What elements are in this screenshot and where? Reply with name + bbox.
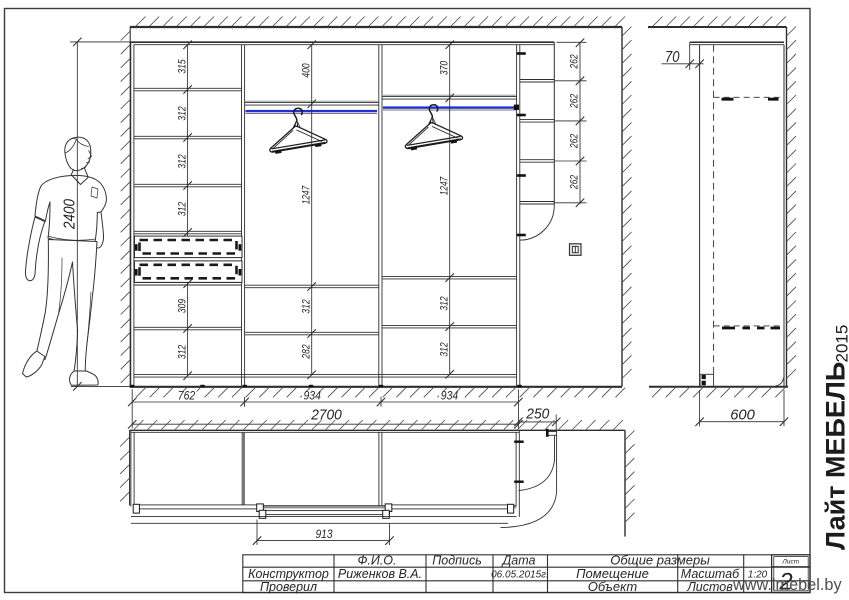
svg-text:Подпись: Подпись <box>432 553 482 567</box>
svg-text:Риженков В.А.: Риженков В.А. <box>338 567 422 581</box>
svg-text:370: 370 <box>438 60 450 75</box>
svg-text:250: 250 <box>525 406 550 423</box>
svg-text:Дата: Дата <box>501 553 536 567</box>
svg-text:312: 312 <box>176 345 188 359</box>
svg-text:2700: 2700 <box>310 406 342 423</box>
svg-text:312: 312 <box>176 106 188 120</box>
svg-text:400: 400 <box>300 63 312 78</box>
svg-text:600: 600 <box>730 406 755 423</box>
svg-text:312: 312 <box>438 342 450 356</box>
svg-text:913: 913 <box>316 529 334 541</box>
svg-text:282: 282 <box>300 344 312 359</box>
svg-text:309: 309 <box>176 299 188 313</box>
svg-text:06.05.2015г.: 06.05.2015г. <box>491 570 549 581</box>
svg-text:262: 262 <box>569 94 581 109</box>
svg-text:www.lmebel.by: www.lmebel.by <box>732 576 842 594</box>
svg-text:315: 315 <box>176 59 188 74</box>
svg-text:262: 262 <box>569 175 581 190</box>
svg-text:934: 934 <box>441 391 459 403</box>
svg-text:262: 262 <box>569 134 581 149</box>
svg-text:312: 312 <box>176 154 188 168</box>
svg-text:Листов: Листов <box>686 580 733 594</box>
svg-text:312: 312 <box>300 299 312 313</box>
svg-text:1247: 1247 <box>438 176 450 195</box>
svg-text:312: 312 <box>438 296 450 310</box>
svg-text:1247: 1247 <box>300 185 312 204</box>
svg-text:Лист: Лист <box>781 559 799 566</box>
svg-text:262: 262 <box>569 54 581 69</box>
svg-text:Объект: Объект <box>588 579 638 594</box>
svg-text:762: 762 <box>178 391 196 403</box>
svg-text:70: 70 <box>665 49 680 66</box>
svg-text:312: 312 <box>176 202 188 216</box>
svg-text:Ф.И.О.: Ф.И.О. <box>357 553 396 567</box>
svg-text:Проверил: Проверил <box>260 580 317 594</box>
svg-text:2015: 2015 <box>832 325 849 363</box>
svg-text:Масштаб: Масштаб <box>681 567 740 581</box>
svg-text:934: 934 <box>303 391 321 403</box>
svg-text:2400: 2400 <box>61 199 78 230</box>
svg-text:Конструктор: Конструктор <box>248 567 329 581</box>
svg-text:Лайт МЕБЕЛЬ: Лайт МЕБЕЛЬ <box>820 362 849 550</box>
